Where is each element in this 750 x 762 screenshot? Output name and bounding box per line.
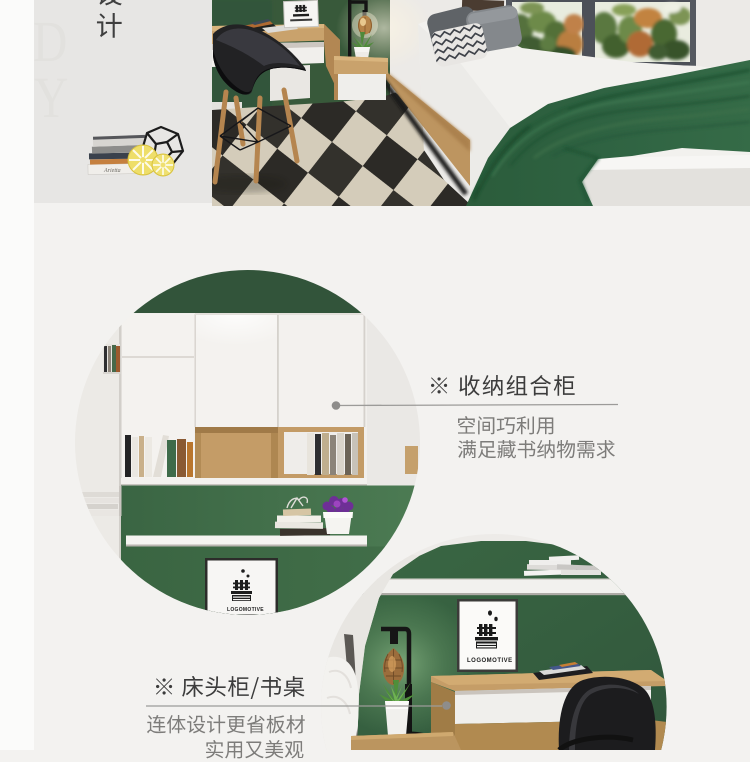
svg-text:LOGOMOTIVE: LOGOMOTIVE: [227, 607, 264, 613]
svg-text:Arietta: Arietta: [103, 168, 121, 174]
svg-text:LOGOMOTIVE: LOGOMOTIVE: [467, 658, 513, 664]
